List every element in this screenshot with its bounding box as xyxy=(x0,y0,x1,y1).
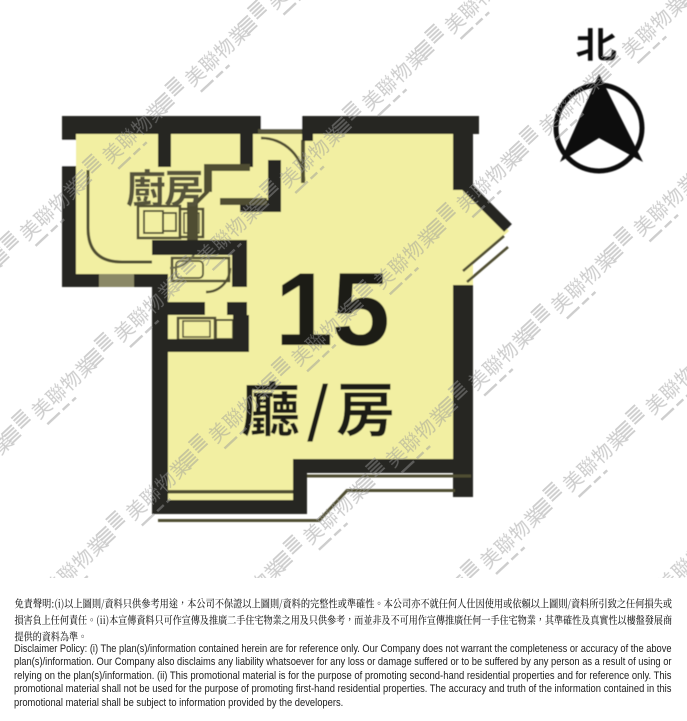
svg-text:15: 15 xyxy=(275,252,389,368)
